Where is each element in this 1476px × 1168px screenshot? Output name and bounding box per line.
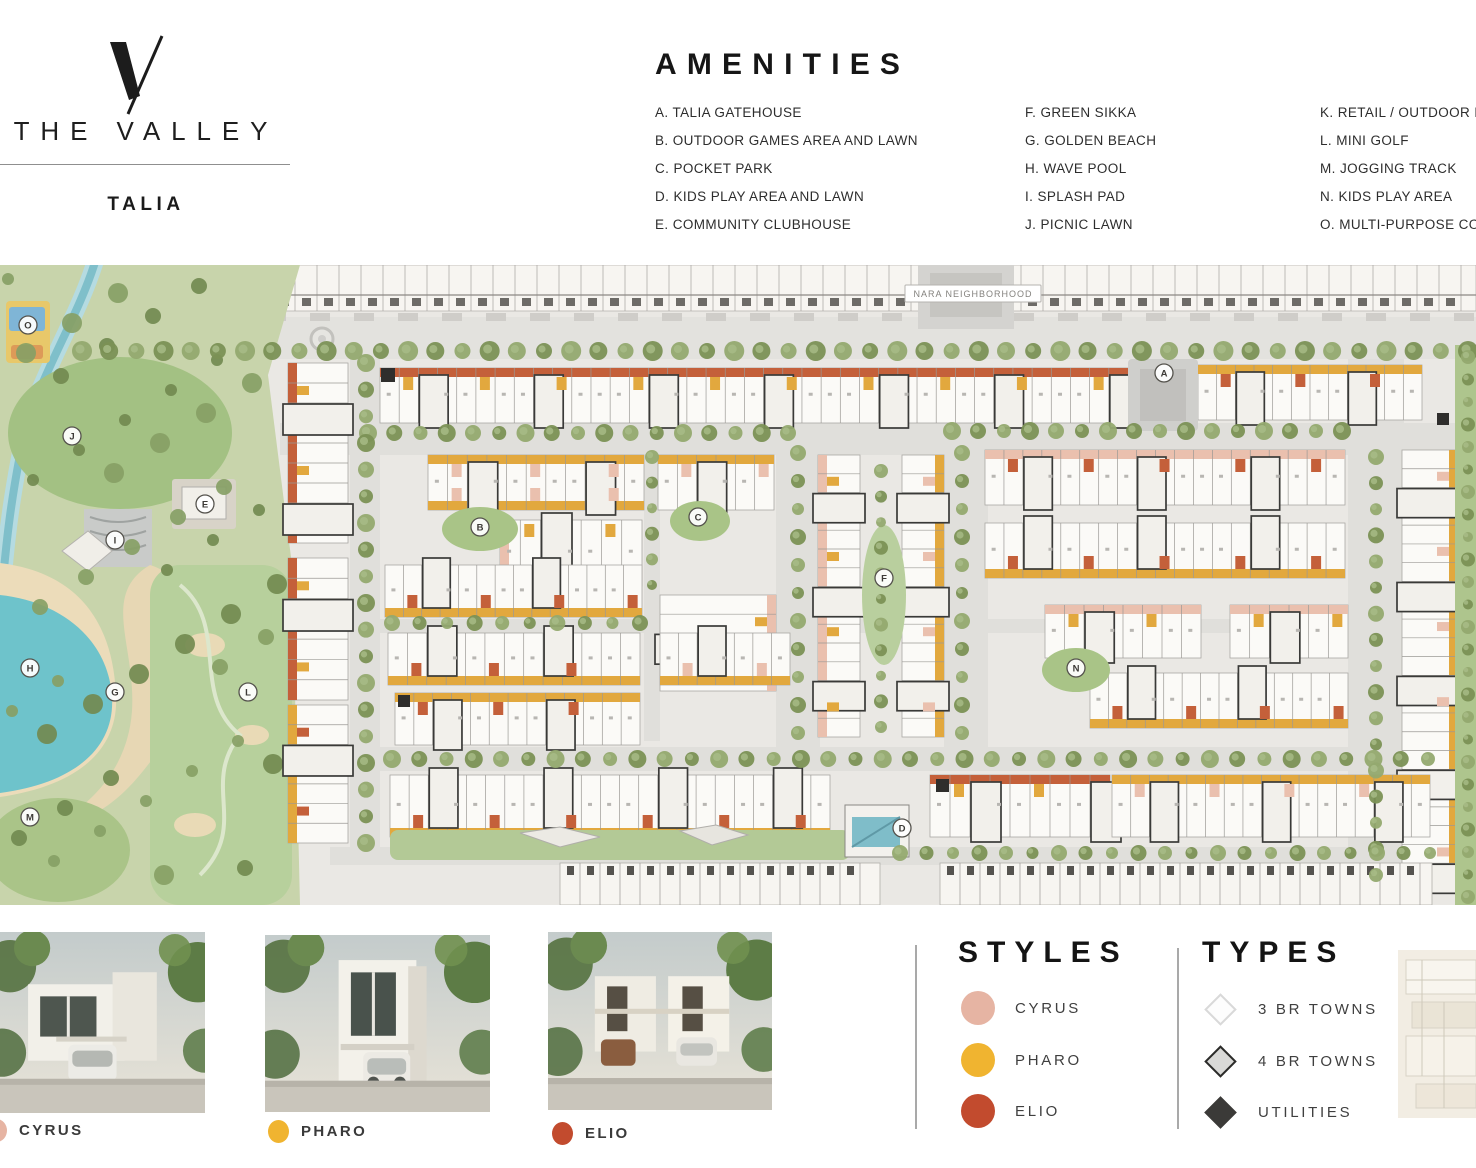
svg-text:D: D	[899, 823, 906, 834]
amenity-item: L. MINI GOLF	[1320, 127, 1476, 155]
pharo-swatch-label: PHARO	[1015, 1052, 1082, 1069]
amenities-column-1: A. TALIA GATEHOUSEB. OUTDOOR GAMES AREA …	[655, 99, 918, 239]
elio-swatch-icon	[961, 1094, 995, 1128]
map-marker-M: M	[21, 808, 39, 826]
cyrus-thumbnail	[0, 932, 205, 1113]
svg-text:N: N	[1073, 663, 1080, 674]
cyrus-swatch-icon	[961, 991, 995, 1025]
3br-label: 3 BR TOWNS	[1258, 1001, 1378, 1018]
amenity-item: H. WAVE POOL	[1025, 155, 1156, 183]
4br-label: 4 BR TOWNS	[1258, 1053, 1378, 1070]
map-marker-D: D	[893, 819, 911, 837]
svg-text:G: G	[111, 687, 118, 698]
elio-thumbnail	[548, 932, 772, 1110]
map-marker-F: F	[875, 569, 893, 587]
pharo-dot-icon	[268, 1120, 289, 1143]
legend-style-elio: ELIO	[961, 1093, 1060, 1129]
map-marker-N: N	[1067, 659, 1085, 677]
divider-thumbs-styles	[915, 945, 917, 1129]
cut-off-floorplan-sketch	[1398, 950, 1476, 1118]
map-marker-L: L	[239, 683, 257, 701]
svg-text:F: F	[881, 573, 887, 584]
pharo-swatch-icon	[961, 1043, 995, 1077]
community-name: TALIA	[0, 194, 292, 216]
cyrus-thumbnail-label: CYRUS	[18, 1118, 84, 1142]
amenity-item: B. OUTDOOR GAMES AREA AND LAWN	[655, 127, 918, 155]
brand-name: THE VALLEY	[0, 116, 292, 147]
utilities-label: UTILITIES	[1258, 1104, 1352, 1121]
svg-text:E: E	[202, 499, 208, 510]
map-marker-C: C	[689, 508, 707, 526]
nara-neighborhood-label: NARA NEIGHBORHOOD	[913, 289, 1032, 299]
cyrus-dot-icon	[0, 1119, 7, 1142]
brochure-page: THE VALLEY TALIA AMENITIES A. TALIA GATE…	[0, 0, 1476, 1168]
legend-type-utilities: UTILITIES	[1203, 1094, 1352, 1130]
map-marker-I: I	[106, 531, 124, 549]
amenity-item: N. KIDS PLAY AREA	[1320, 183, 1476, 211]
elio-swatch-label: ELIO	[1015, 1103, 1060, 1120]
map-marker-J: J	[63, 427, 81, 445]
amenity-item: M. JOGGING TRACK	[1320, 155, 1476, 183]
elio-label: ELIO	[585, 1125, 630, 1142]
svg-text:C: C	[695, 512, 702, 523]
cyrus-label: CYRUS	[19, 1122, 84, 1139]
pharo-label: PHARO	[301, 1123, 367, 1140]
svg-text:O: O	[24, 320, 31, 331]
legend-type-3br: 3 BR TOWNS	[1203, 991, 1378, 1027]
styles-title: STYLES	[958, 936, 1129, 970]
pharo-thumbnail-label: PHARO	[268, 1119, 367, 1143]
legend-style-pharo: PHARO	[961, 1042, 1082, 1078]
cyrus-swatch-label: CYRUS	[1015, 1000, 1081, 1017]
divider-styles-types	[1177, 948, 1179, 1129]
legend-style-cyrus: CYRUS	[961, 990, 1081, 1026]
amenity-item: F. GREEN SIKKA	[1025, 99, 1156, 127]
svg-text:M: M	[26, 812, 34, 823]
amenity-item: G. GOLDEN BEACH	[1025, 127, 1156, 155]
map-marker-G: G	[106, 683, 124, 701]
masterplan-map: NARA NEIGHBORHOODOJEIHGLMBCFAND	[0, 265, 1476, 905]
pharo-thumbnail	[265, 935, 490, 1112]
amenity-item: C. POCKET PARK	[655, 155, 918, 183]
elio-dot-icon	[552, 1122, 573, 1145]
types-title: TYPES	[1202, 936, 1345, 970]
amenities-title: AMENITIES	[655, 48, 910, 82]
svg-text:H: H	[27, 663, 34, 674]
svg-text:J: J	[69, 431, 74, 442]
amenity-item: I. SPLASH PAD	[1025, 183, 1156, 211]
amenity-item: K. RETAIL / OUTDOOR D	[1320, 99, 1476, 127]
map-marker-B: B	[471, 518, 489, 536]
valley-v-icon	[98, 34, 182, 118]
svg-text:A: A	[1161, 368, 1168, 379]
svg-text:B: B	[477, 522, 484, 533]
amenities-column-3: K. RETAIL / OUTDOOR DL. MINI GOLFM. JOGG…	[1320, 99, 1476, 239]
amenity-item: D. KIDS PLAY AREA AND LAWN	[655, 183, 918, 211]
svg-text:I: I	[114, 535, 117, 546]
map-marker-E: E	[196, 495, 214, 513]
utilities-diamond-icon	[1204, 1096, 1237, 1129]
amenity-item: A. TALIA GATEHOUSE	[655, 99, 918, 127]
3br-diamond-icon	[1204, 993, 1237, 1026]
4br-diamond-icon	[1204, 1045, 1237, 1078]
map-marker-H: H	[21, 659, 39, 677]
elio-thumbnail-label: ELIO	[552, 1121, 630, 1145]
logo-divider	[0, 164, 290, 165]
legend-type-4br: 4 BR TOWNS	[1203, 1043, 1378, 1079]
amenity-item: O. MULTI-PURPOSE COU	[1320, 211, 1476, 239]
amenity-item: J. PICNIC LAWN	[1025, 211, 1156, 239]
amenity-item: E. COMMUNITY CLUBHOUSE	[655, 211, 918, 239]
svg-text:L: L	[245, 687, 251, 698]
amenities-column-2: F. GREEN SIKKAG. GOLDEN BEACHH. WAVE POO…	[1025, 99, 1156, 239]
map-marker-O: O	[19, 316, 37, 334]
map-marker-A: A	[1155, 364, 1173, 382]
